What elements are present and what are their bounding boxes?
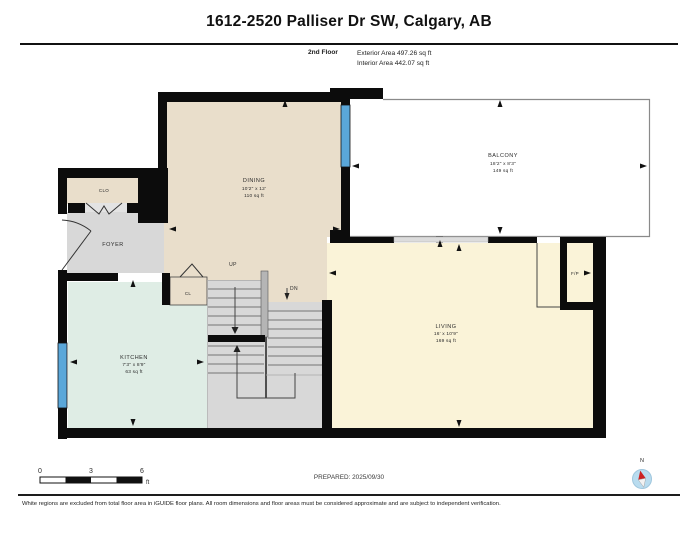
dining-window: [341, 105, 350, 167]
living-area: 169 sq ft: [436, 338, 457, 344]
dining-room: [164, 102, 341, 237]
prepared-date: PREPARED: 2025/09/30: [0, 474, 698, 481]
stair-railing: [261, 271, 268, 337]
foyer-label: FOYER: [102, 242, 123, 248]
kitchen-dims: 7'3" x 8'9": [122, 362, 145, 368]
sliding-door: [394, 237, 488, 242]
floorplan-page: 1612-2520 Palliser Dr SW, Calgary, AB 2n…: [0, 0, 698, 540]
stairs-up-label: UP: [229, 262, 237, 268]
stairs-down-label: DN: [290, 286, 298, 292]
balcony-outline: [350, 100, 650, 237]
disclaimer-text: White regions are excluded from total fl…: [22, 501, 682, 507]
balcony-dims: 18'2" x 8'3": [490, 161, 516, 167]
kitchen-label: KITCHEN: [120, 355, 148, 361]
balcony-label: BALCONY: [488, 153, 518, 159]
floorplan-drawing: CLO FOYER DINING 10'2" x 12' 110 sq ft B…: [0, 0, 698, 540]
kitchen-window: [58, 343, 67, 408]
balcony-area: 149 sq ft: [493, 168, 514, 174]
closet-label: CLO: [99, 188, 109, 193]
dining-dims: 10'2" x 12': [242, 186, 266, 192]
dining-area: 110 sq ft: [244, 193, 264, 199]
living-dims: 16' x 10'9": [434, 331, 458, 337]
kitchen-area: 63 sq ft: [125, 369, 143, 375]
small-closet-label: CL: [185, 291, 192, 296]
living-label: LIVING: [435, 324, 456, 330]
compass-north-label: N: [640, 458, 644, 464]
living-room: [327, 243, 593, 428]
fireplace-label: F/P: [571, 271, 579, 276]
footer-divider: [18, 494, 680, 496]
dining-label: DINING: [243, 178, 265, 184]
